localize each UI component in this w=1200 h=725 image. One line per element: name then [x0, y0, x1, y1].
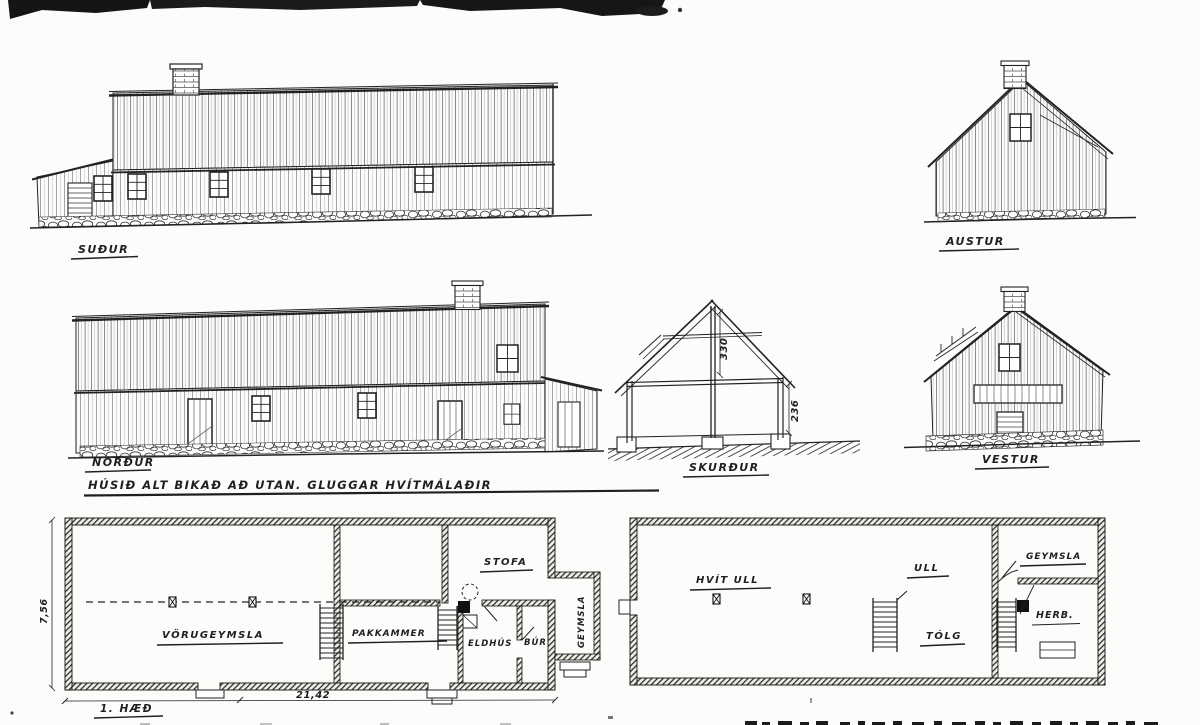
herb-underline — [1032, 624, 1080, 626]
stofa-underline — [480, 570, 533, 572]
room-ull: ULL — [914, 563, 939, 574]
east-chimney — [1001, 61, 1029, 89]
dim-330: 330 — [719, 338, 730, 360]
west-loading-hatch — [974, 385, 1062, 403]
herb-step-notch — [1040, 642, 1075, 658]
plan-loft: HVÍT ULL ULL TÓLG GEYMSLA HERB. — [619, 518, 1105, 685]
room-tolg: TÓLG — [926, 629, 962, 642]
west-elevation: VESTUR — [904, 287, 1140, 469]
east-elevation: AUSTUR — [924, 61, 1136, 251]
door-swing-geymsla — [998, 561, 1018, 582]
north-label-underline — [85, 470, 151, 472]
south-window-4 — [312, 169, 330, 194]
section-label-underline — [683, 475, 769, 477]
dim-length-2142: 21,42 — [296, 690, 330, 701]
south-window-3 — [210, 172, 228, 197]
north-chimney — [452, 281, 483, 310]
south-chimney — [170, 64, 202, 95]
east-attic-window — [1010, 114, 1031, 141]
pakkammer-underline — [348, 641, 447, 643]
west-chimney — [1001, 287, 1028, 312]
south-window-2 — [128, 174, 146, 199]
room-bur: BÚR — [524, 636, 547, 648]
loft-left-hatch — [619, 600, 630, 614]
scan-edge-artifact-bottom — [10, 698, 1158, 725]
stairs-loft-main — [873, 591, 907, 652]
north-leanto — [541, 377, 602, 452]
north-window-small — [504, 404, 520, 424]
wall-mid-horizontal-2 — [482, 600, 548, 606]
west-label: VESTUR — [982, 453, 1040, 466]
north-window-2 — [358, 393, 376, 418]
section-dim-wall: 236 — [786, 381, 801, 436]
wall-geymsla-south — [1018, 578, 1098, 584]
loft-post-2 — [803, 594, 810, 604]
section-dim-loft: 330 — [717, 309, 730, 378]
section-label: SKURÐUR — [689, 461, 760, 474]
wall-warehouse-east — [334, 525, 340, 683]
room-pakkammer: PAKKAMMER — [352, 629, 426, 639]
plan1-label: 1. HÆÐ — [100, 703, 153, 715]
drawing-sheet: SUÐUR AUSTUR — [0, 0, 1200, 725]
south-label-underline — [71, 257, 138, 260]
room-herb: HERB. — [1036, 610, 1074, 621]
stairs-loft-herb — [997, 598, 1016, 652]
west-attic-window — [999, 344, 1020, 371]
tolg-underline — [920, 644, 965, 646]
dim-236: 236 — [790, 400, 801, 422]
exterior-step-2a — [427, 690, 457, 698]
south-label: SUÐUR — [78, 243, 129, 256]
stairs-pakkammer — [438, 606, 457, 650]
room-eldhus: ELDHÚS — [468, 637, 512, 649]
post-symbol-1 — [169, 597, 176, 607]
annex-geymsla: GEYMSLA — [555, 572, 600, 677]
plan1-dim-width: 7,56 — [39, 517, 55, 691]
drawing-note: HÚSIÐ ALT BIKAÐ AÐ UTAN. GLUGGAR HVÍTMÁL… — [84, 477, 659, 496]
plan1-dim-length: 21,42 — [62, 690, 558, 704]
east-label: AUSTUR — [945, 235, 1005, 248]
wall-bur-west-upper — [517, 606, 522, 640]
room-vorugeymsla: VÖRUGEYMSLA — [162, 627, 264, 641]
room-stofa: STOFA — [484, 557, 527, 568]
wall-stofa-west — [442, 525, 448, 603]
cross-section: 330 236 SKURÐUR — [608, 300, 860, 477]
annex-step-2 — [564, 670, 586, 677]
wall-bur-west-lower — [517, 658, 522, 683]
north-window-1 — [252, 396, 270, 421]
south-elevation: SUÐUR — [30, 64, 592, 259]
wall-eldhus-west — [458, 606, 463, 683]
west-label-underline — [975, 467, 1049, 469]
vorugeymsla-underline — [157, 643, 283, 645]
south-window-1 — [94, 176, 112, 201]
dim-width-756: 7,56 — [39, 599, 50, 624]
door-swing-eldhus — [484, 606, 534, 640]
wall-mid-horizontal-1 — [340, 600, 440, 606]
exterior-step-1 — [196, 690, 224, 698]
east-label-underline — [939, 249, 1019, 251]
annex-step-1 — [560, 662, 590, 670]
geymsla-loft-underline — [1020, 564, 1086, 566]
south-window-5 — [415, 167, 433, 192]
north-elevation: NORÐUR — [68, 281, 604, 472]
loft-post-1 — [713, 594, 720, 604]
north-door-1 — [188, 399, 212, 447]
room-hvit-ull: HVÍT ULL — [696, 573, 759, 586]
ull-underline — [907, 576, 949, 578]
plan-first-floor: GEYMSLA — [39, 517, 600, 718]
scan-edge-artifact-top — [8, 0, 682, 19]
hvit-ull-underline — [690, 588, 771, 590]
exterior-step-2b — [432, 698, 452, 704]
post-symbol-2 — [249, 597, 256, 607]
annex-label: GEYMSLA — [577, 595, 587, 648]
north-attic-window — [497, 345, 518, 372]
note-text: HÚSIÐ ALT BIKAÐ AÐ UTAN. GLUGGAR HVÍTMÁL… — [88, 477, 492, 492]
north-label: NORÐUR — [92, 456, 155, 469]
room-geymsla-loft: GEYMSLA — [1026, 552, 1081, 562]
section-ground-hatch — [608, 441, 860, 461]
plan1-label-underline — [94, 716, 163, 718]
architectural-drawing-canvas: SUÐUR AUSTUR — [0, 0, 1200, 725]
loft-chimney-symbol — [1017, 600, 1029, 612]
